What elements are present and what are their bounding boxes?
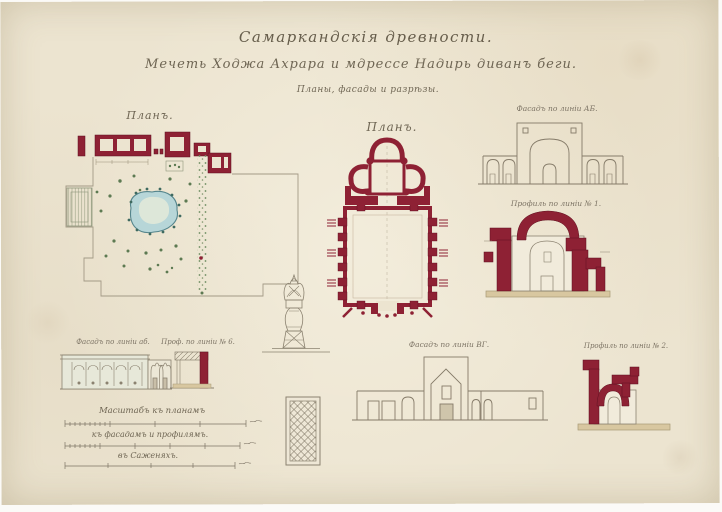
scale-ruler3-label: въ Саженяхъ. xyxy=(118,451,178,460)
facade-ab-label: Фасадъ по линіи АБ. xyxy=(517,104,598,113)
facade-ab-drawing xyxy=(478,123,628,184)
garden-plan-label: Планъ. xyxy=(126,109,173,122)
facade-vg-label: Фасадъ по линіи ВГ. xyxy=(409,340,489,349)
scale-ruler2-label: къ фасадамъ и профилямъ. xyxy=(92,430,208,439)
mosque-plan-label: Планъ. xyxy=(367,120,418,134)
profile-2-drawing xyxy=(578,360,670,430)
scale-bars-drawing xyxy=(65,420,262,469)
garden-plan-drawing xyxy=(66,132,298,296)
scale-heading: Масштабъ къ планамъ xyxy=(99,406,205,416)
profile-2-label: Профиль по линіи № 2. xyxy=(584,342,668,350)
profile-1-label: Профиль по линіи № 1. xyxy=(511,199,601,208)
profile-6-drawing xyxy=(170,352,214,388)
mosque-plan-drawing xyxy=(327,140,448,318)
facade-ab-small-drawing xyxy=(60,355,172,389)
facade-ab-small-label: Фасадъ по линіи аб. xyxy=(76,338,150,346)
column-detail-drawing xyxy=(262,275,330,352)
plate-subtitle2: Планы, фасады и разрѣзы. xyxy=(297,85,439,95)
plate-subtitle: Мечеть Ходжа Ахрара и мдрессе Надирь див… xyxy=(145,57,577,72)
profile-1-drawing xyxy=(484,211,610,297)
scanned-plate: Самаркандскія древности. Мечеть Ходжа Ах… xyxy=(0,0,722,512)
plate-title: Самаркандскія древности. xyxy=(239,28,493,46)
profile-6-label: Проф. по линіи № 6. xyxy=(161,338,235,346)
lattice-panel-drawing xyxy=(286,397,320,465)
facade-vg-drawing xyxy=(352,357,548,420)
